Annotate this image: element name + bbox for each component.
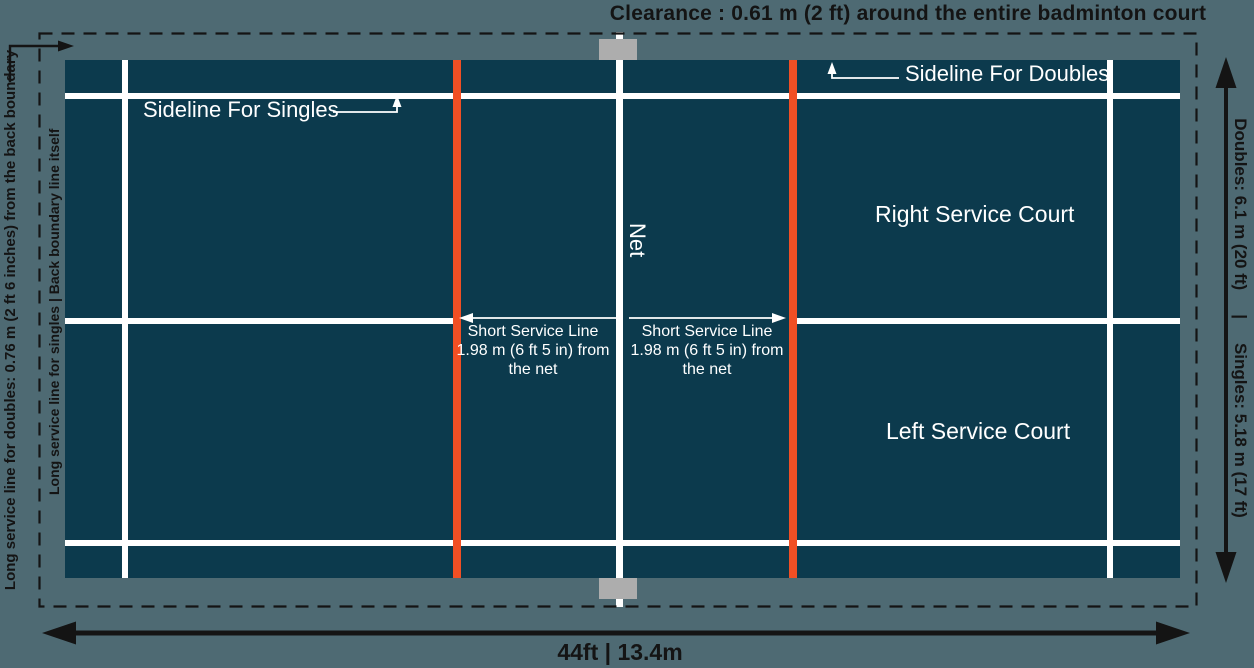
short-service-line-label-right: Short Service Line 1.98 m (6 ft 5 in) fr… (627, 322, 787, 379)
right-service-court-label: Right Service Court (875, 201, 1074, 228)
badminton-court-diagram: Clearance : 0.61 m (2 ft) around the ent… (0, 0, 1254, 668)
short-service-line-text: Short Service Line (453, 322, 613, 341)
long-service-doubles-note: Long service line for doubles: 0.76 m (2… (2, 41, 19, 599)
sideline-singles-label: Sideline For Singles (143, 97, 339, 123)
net-line (616, 32, 623, 607)
short-service-line-text: Short Service Line (627, 322, 787, 341)
short-service-line-text: 1.98 m (6 ft 5 in) from (453, 341, 613, 360)
net-post-bottom (599, 578, 637, 599)
short-service-line-text: the net (453, 360, 613, 379)
long-service-singles-note: Long service line for singles | Back bou… (46, 139, 62, 495)
clearance-title: Clearance : 0.61 m (2 ft) around the ent… (608, 2, 1208, 26)
short-service-line-right (789, 60, 797, 578)
court-length-dimension-label: 44ft | 13.4m (470, 639, 770, 666)
dimension-separator: | (1230, 314, 1250, 319)
short-service-line-text: the net (627, 360, 787, 379)
short-service-line-label-left: Short Service Line 1.98 m (6 ft 5 in) fr… (453, 322, 613, 379)
doubles-width-text: Doubles: 6.1 m (20 ft) (1230, 118, 1250, 290)
center-line-right (792, 318, 1180, 324)
short-service-line-text: 1.98 m (6 ft 5 in) from (627, 341, 787, 360)
singles-width-text: Singles: 5.18 m (17 ft) (1230, 343, 1250, 518)
court-width-dimension-label: Doubles: 6.1 m (20 ft) | Singles: 5.18 m… (1230, 75, 1250, 561)
left-service-court-label: Left Service Court (886, 418, 1070, 445)
center-line-left (65, 318, 456, 324)
short-service-line-left (453, 60, 461, 578)
net-label: Net (624, 223, 650, 257)
sideline-doubles-label: Sideline For Doubles (905, 61, 1109, 87)
net-post-top (599, 39, 637, 60)
